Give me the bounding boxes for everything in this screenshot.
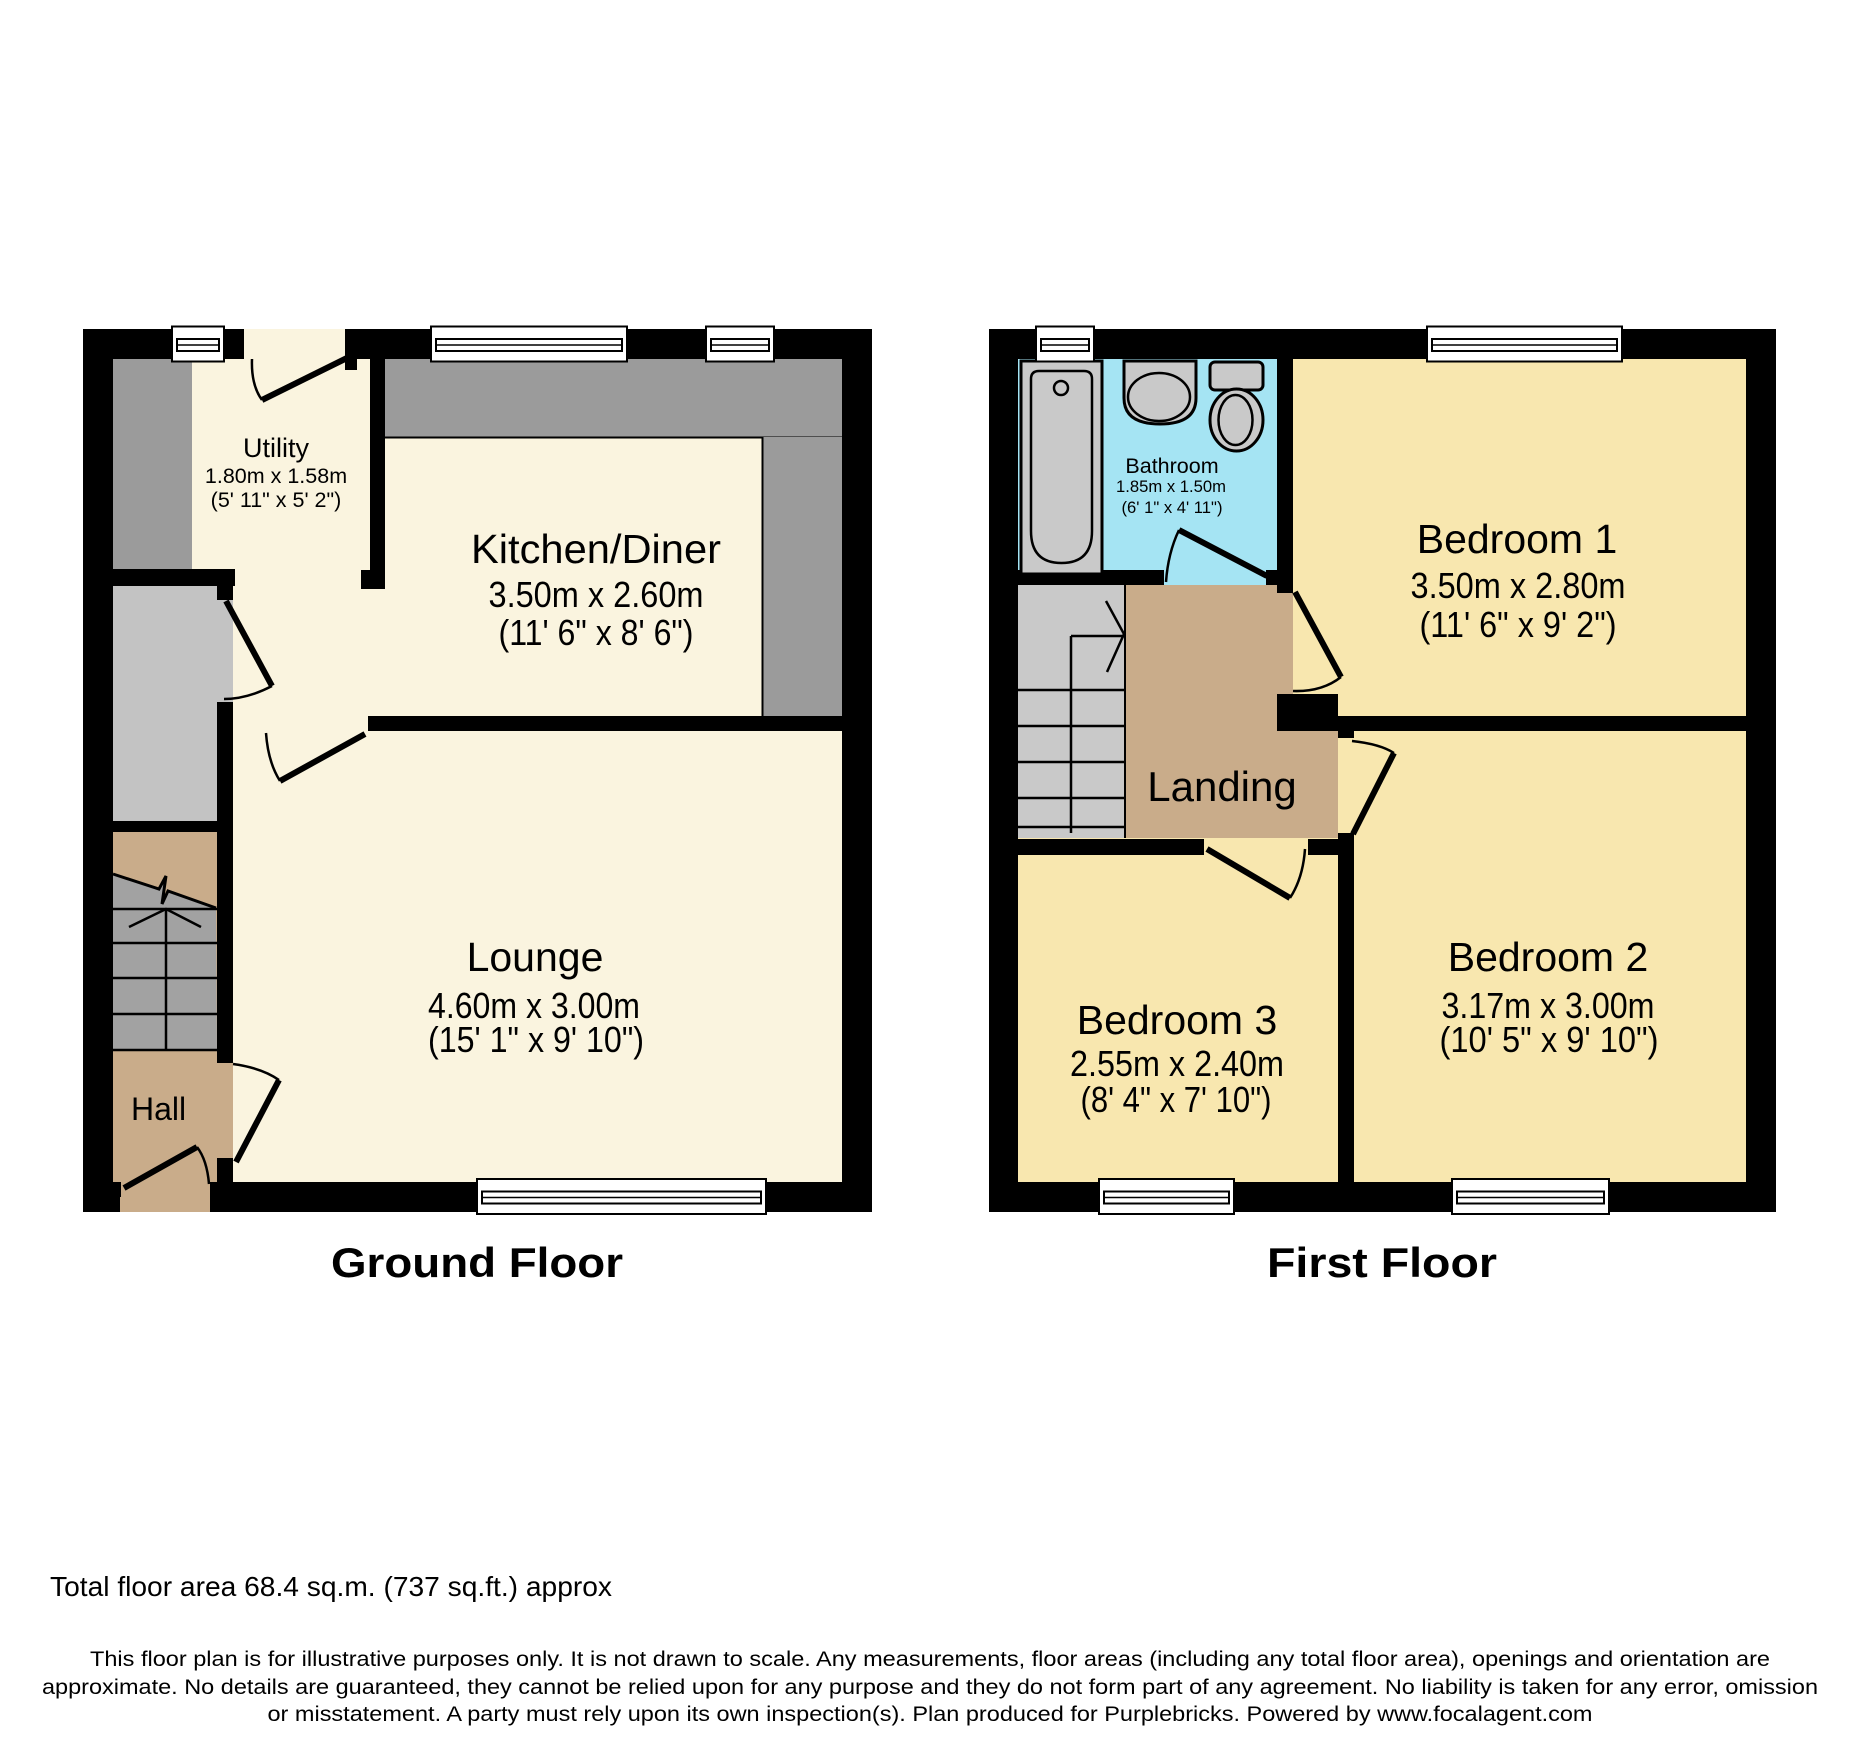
svg-text:(15' 1" x 9' 10"): (15' 1" x 9' 10") [428, 1019, 644, 1060]
svg-text:Hall: Hall [131, 1091, 186, 1127]
svg-text:Bedroom 1: Bedroom 1 [1417, 516, 1618, 562]
svg-text:Lounge: Lounge [467, 934, 604, 980]
svg-text:(6' 1" x 4' 11"): (6' 1" x 4' 11") [1122, 498, 1223, 517]
svg-text:(11' 6" x 9' 2"): (11' 6" x 9' 2") [1420, 604, 1617, 645]
svg-text:Landing: Landing [1147, 763, 1296, 810]
svg-text:This floor plan is for illustr: This floor plan is for illustrative purp… [90, 1647, 1770, 1671]
svg-text:1.80m x 1.58m: 1.80m x 1.58m [205, 464, 347, 488]
svg-text:Ground Floor: Ground Floor [331, 1239, 623, 1286]
svg-text:Bedroom 2: Bedroom 2 [1448, 934, 1649, 980]
svg-text:or misstatement. A party must: or misstatement. A party must rely upon … [268, 1702, 1593, 1726]
svg-text:approximate. No details are gu: approximate. No details are guaranteed, … [42, 1675, 1818, 1699]
svg-text:2.55m x 2.40m: 2.55m x 2.40m [1070, 1043, 1284, 1084]
svg-text:Bedroom 3: Bedroom 3 [1077, 997, 1278, 1043]
svg-text:Bathroom: Bathroom [1125, 454, 1218, 478]
svg-text:3.50m x 2.80m: 3.50m x 2.80m [1411, 565, 1626, 606]
svg-text:Kitchen/Diner: Kitchen/Diner [471, 526, 721, 572]
svg-text:1.85m x 1.50m: 1.85m x 1.50m [1116, 477, 1226, 496]
svg-text:(5' 11" x 5' 2"): (5' 11" x 5' 2") [211, 488, 342, 512]
svg-text:Utility: Utility [243, 433, 309, 463]
svg-text:(8' 4" x 7' 10"): (8' 4" x 7' 10") [1081, 1079, 1272, 1120]
svg-text:3.50m x 2.60m: 3.50m x 2.60m [489, 574, 704, 615]
svg-text:(11' 6" x 8' 6"): (11' 6" x 8' 6") [499, 612, 694, 653]
svg-text:(10' 5" x 9' 10"): (10' 5" x 9' 10") [1440, 1019, 1659, 1060]
svg-text:First Floor: First Floor [1267, 1239, 1497, 1286]
svg-text:Total floor area 68.4 sq.m. (7: Total floor area 68.4 sq.m. (737 sq.ft.)… [50, 1571, 612, 1602]
